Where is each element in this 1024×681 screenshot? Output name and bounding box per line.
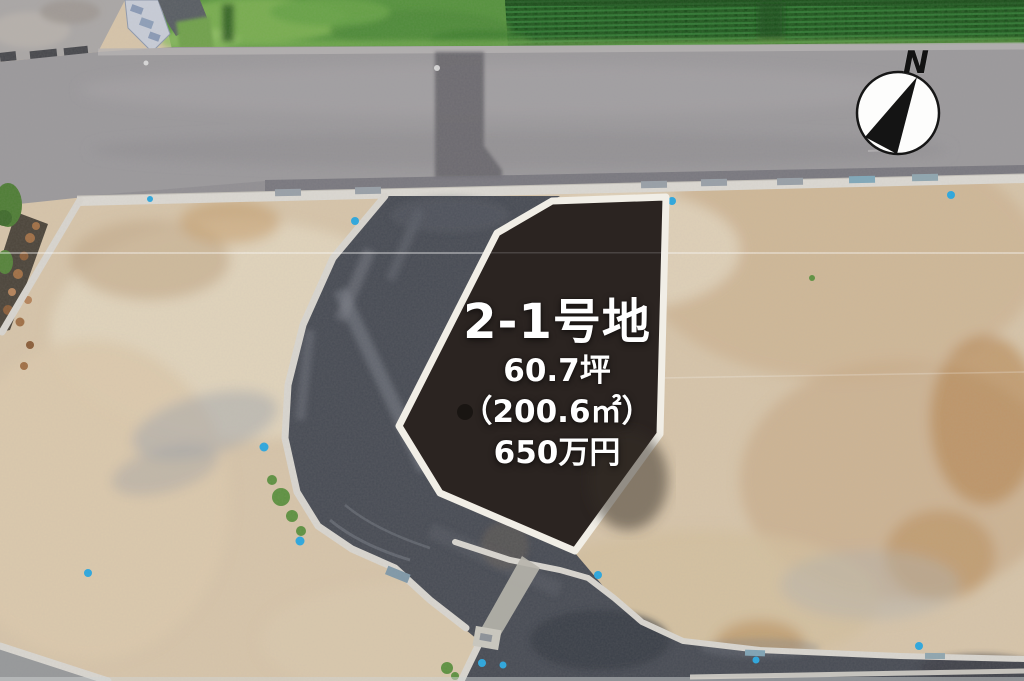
north-label: N	[903, 45, 943, 81]
aerial-photo	[0, 0, 1024, 681]
compass-icon	[857, 72, 939, 154]
aerial-lot-map: 2-1号地 60.7坪 （200.6㎡） 650万円 N	[0, 0, 1024, 681]
